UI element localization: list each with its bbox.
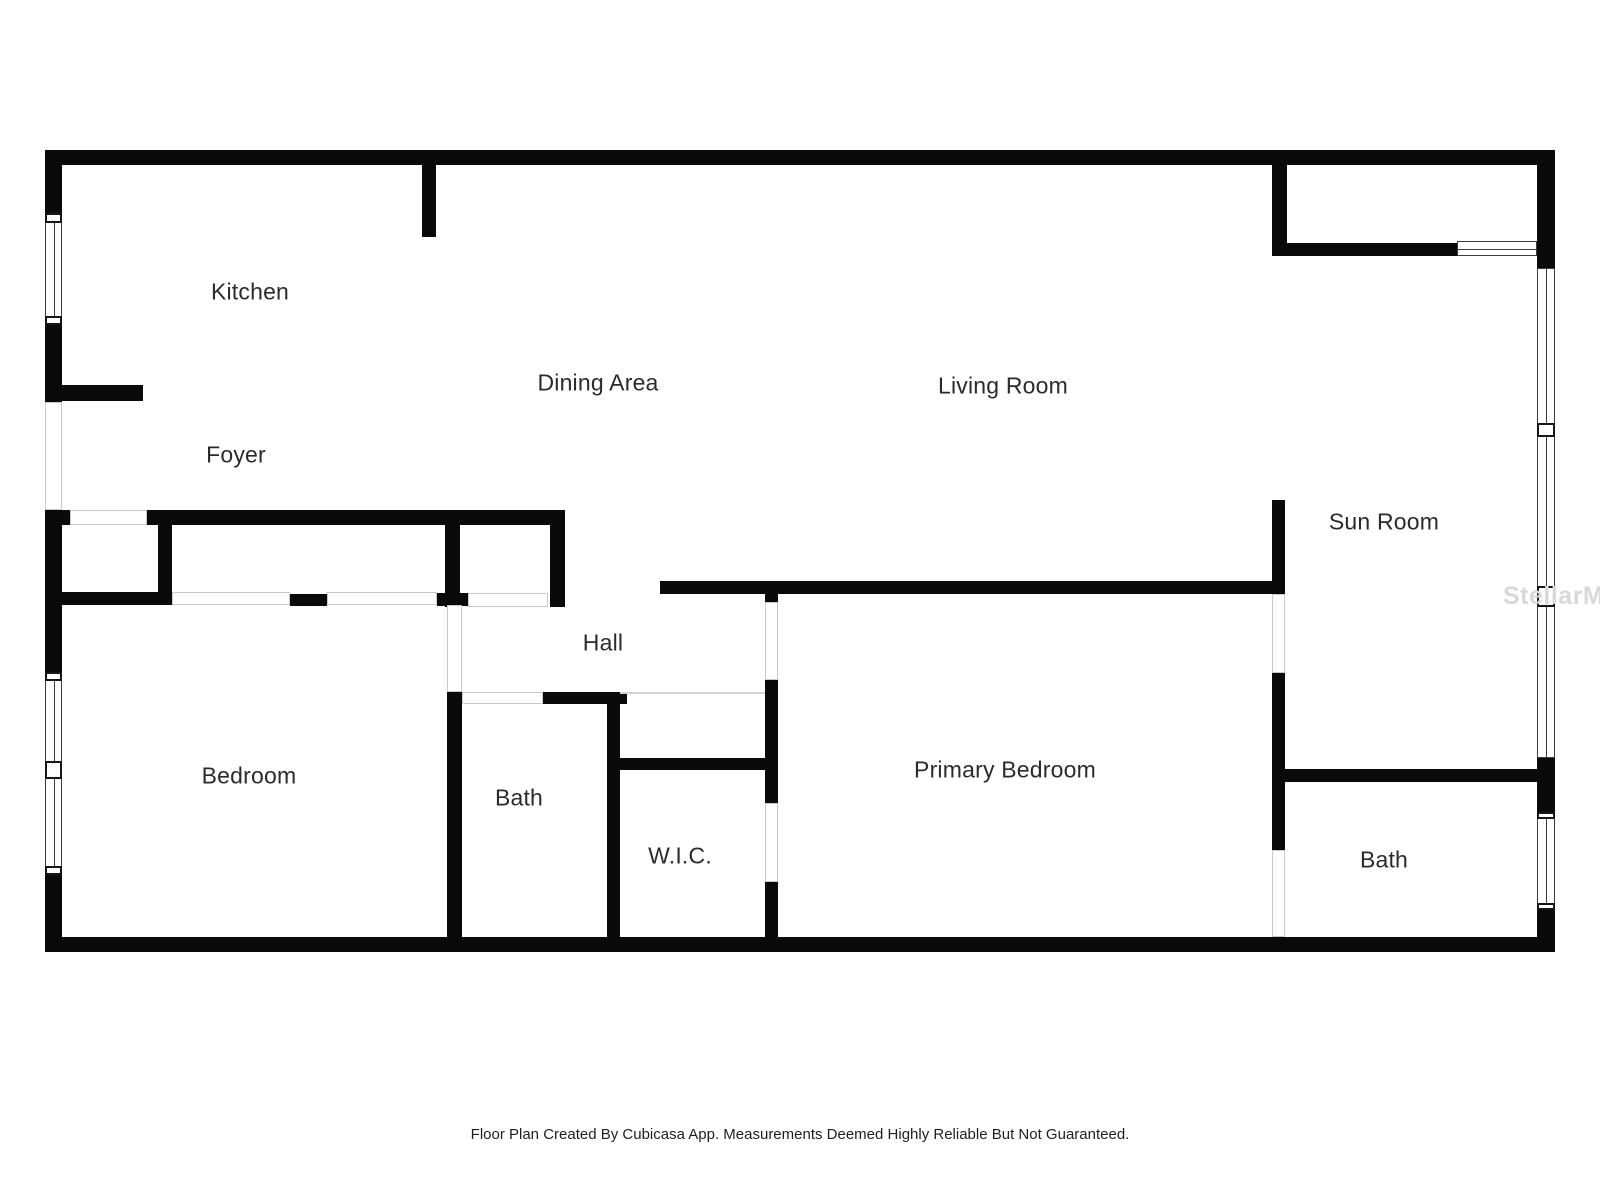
room-label-foyer: Foyer — [206, 442, 266, 469]
footer-disclaimer: Floor Plan Created By Cubicasa App. Meas… — [0, 1126, 1600, 1143]
wall-wic-top — [607, 758, 777, 770]
window-mullion — [1537, 423, 1555, 437]
opening-bedroom-door — [447, 605, 462, 692]
window-left-upper — [45, 213, 62, 325]
wall-sunroom-west-upper — [1272, 500, 1285, 594]
opening-front-door — [45, 402, 62, 510]
window-mullion — [1537, 903, 1555, 910]
opening-primary-door — [765, 602, 778, 680]
window-right-lower — [1537, 812, 1555, 910]
wall-bath2-top — [1285, 769, 1540, 782]
floor-plan-page: { "watermark": { "text": "StellarMLS", "… — [0, 0, 1600, 1200]
wall-perimeter-bottom — [45, 937, 1555, 952]
room-label-bedroom: Bedroom — [202, 763, 297, 790]
wall-bath-east — [607, 692, 620, 952]
opening-sunroom-door — [1272, 594, 1285, 673]
wall-sunroom-west-lower — [1272, 673, 1285, 850]
wall-topright-bottom — [1272, 243, 1457, 256]
opening-wic-door — [765, 803, 778, 882]
wall-bath-west — [447, 692, 462, 952]
wall-primary-door-jamb — [765, 593, 778, 602]
wall-foyer-stub — [45, 385, 143, 401]
wall-wic-east-lower — [765, 882, 778, 952]
wall-right-2 — [1537, 758, 1555, 812]
window-mullion — [45, 672, 62, 681]
opening-bath2-door — [1272, 850, 1285, 937]
window-right-upper — [1537, 268, 1555, 758]
opening-closet1-slide-l — [172, 592, 290, 605]
wall-left-4 — [45, 875, 62, 952]
room-label-hall: Hall — [583, 630, 623, 657]
window-mullion — [45, 316, 62, 325]
wall-closet-top — [147, 510, 565, 525]
room-label-kitchen: Kitchen — [211, 279, 289, 306]
room-label-living-room: Living Room — [938, 373, 1068, 400]
wall-closet-right — [550, 510, 565, 607]
wall-closet-divider-left — [158, 510, 172, 605]
window-mullion — [1537, 812, 1555, 819]
window-mullion — [45, 761, 62, 779]
room-label-bath-2: Bath — [1360, 847, 1408, 874]
room-label-sun-room: Sun Room — [1329, 509, 1439, 536]
wall-left-3 — [45, 510, 62, 672]
room-label-primary-bedroom: Primary Bedroom — [914, 757, 1096, 784]
room-label-bath: Bath — [495, 785, 543, 812]
wall-kitchen-stub — [422, 165, 436, 237]
wall-primary-top — [660, 581, 1285, 594]
wall-right-3 — [1537, 910, 1555, 952]
opening-closet2-slide — [468, 593, 548, 607]
window-mullion — [45, 866, 62, 875]
floor-plan: KitchenFoyerDining AreaLiving RoomSun Ro… — [0, 0, 1600, 1200]
opening-bath-door — [462, 692, 543, 704]
wall-right-1 — [1537, 150, 1555, 268]
opening-closet1-slide-r — [327, 592, 437, 605]
window-topright — [1457, 241, 1537, 256]
stellar-mls-watermark: StellarMLS — [1503, 582, 1600, 611]
wall-wic-east-upper — [765, 680, 778, 803]
wall-closet-top-left-stub — [45, 510, 70, 525]
room-label-wic: W.I.C. — [648, 843, 712, 870]
room-label-dining-area: Dining Area — [537, 370, 658, 397]
wall-perimeter-top — [45, 150, 1555, 165]
opening-foyer-closet-door — [70, 510, 147, 525]
wall-left-1 — [45, 150, 62, 213]
hall-south-line — [620, 692, 765, 694]
wall-closet-post — [290, 594, 327, 606]
window-mullion — [45, 213, 62, 223]
